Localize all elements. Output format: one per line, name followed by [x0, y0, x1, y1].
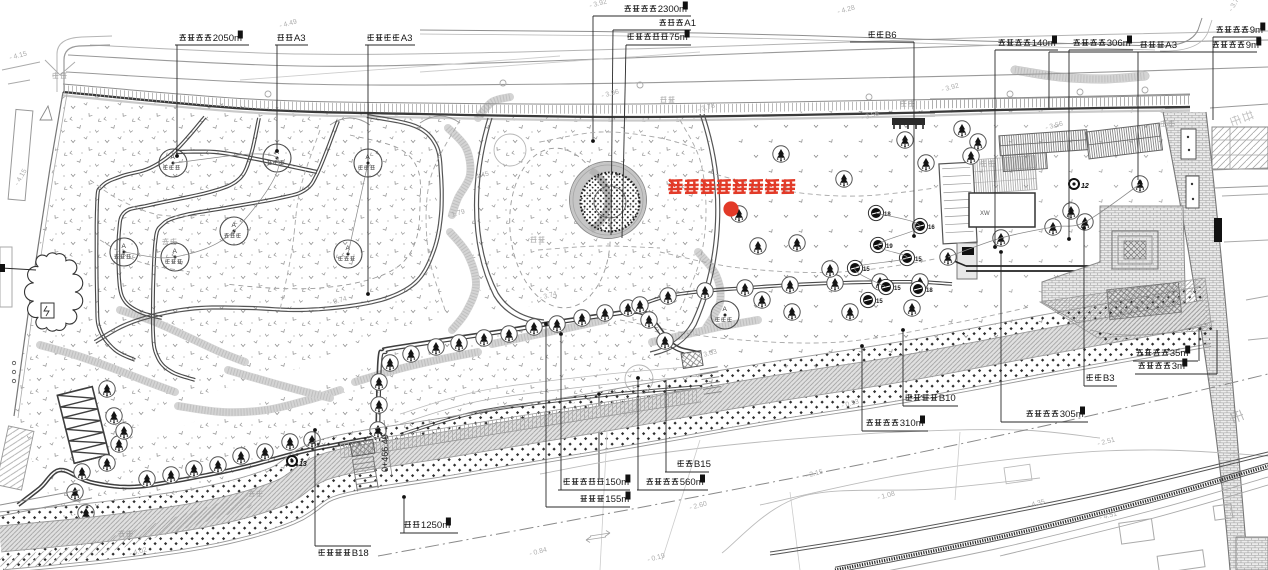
svg-text:12: 12 [1081, 183, 1089, 190]
svg-text:A3: A3 [294, 33, 306, 44]
svg-text:15: 15 [876, 299, 883, 305]
svg-text:18: 18 [926, 288, 933, 294]
svg-text:B3: B3 [1103, 373, 1115, 384]
svg-text:13: 13 [299, 461, 307, 468]
svg-text:XW: XW [980, 211, 990, 217]
svg-text:B18: B18 [352, 548, 369, 559]
svg-text:15: 15 [894, 286, 901, 292]
svg-text:A1: A1 [684, 18, 696, 29]
svg-text:16: 16 [928, 225, 935, 231]
svg-text:B6: B6 [885, 30, 897, 41]
svg-text:B10: B10 [939, 393, 956, 404]
svg-text:1250m: 1250m [421, 520, 450, 531]
svg-text:2050m: 2050m [213, 33, 242, 44]
svg-text:B15: B15 [694, 459, 711, 470]
svg-text:15: 15 [915, 257, 922, 263]
svg-text:A3: A3 [1165, 40, 1177, 51]
svg-text:A3: A3 [401, 33, 413, 44]
svg-text:2300m: 2300m [658, 4, 687, 15]
svg-text:15: 15 [863, 267, 870, 273]
svg-text:19: 19 [886, 244, 893, 250]
